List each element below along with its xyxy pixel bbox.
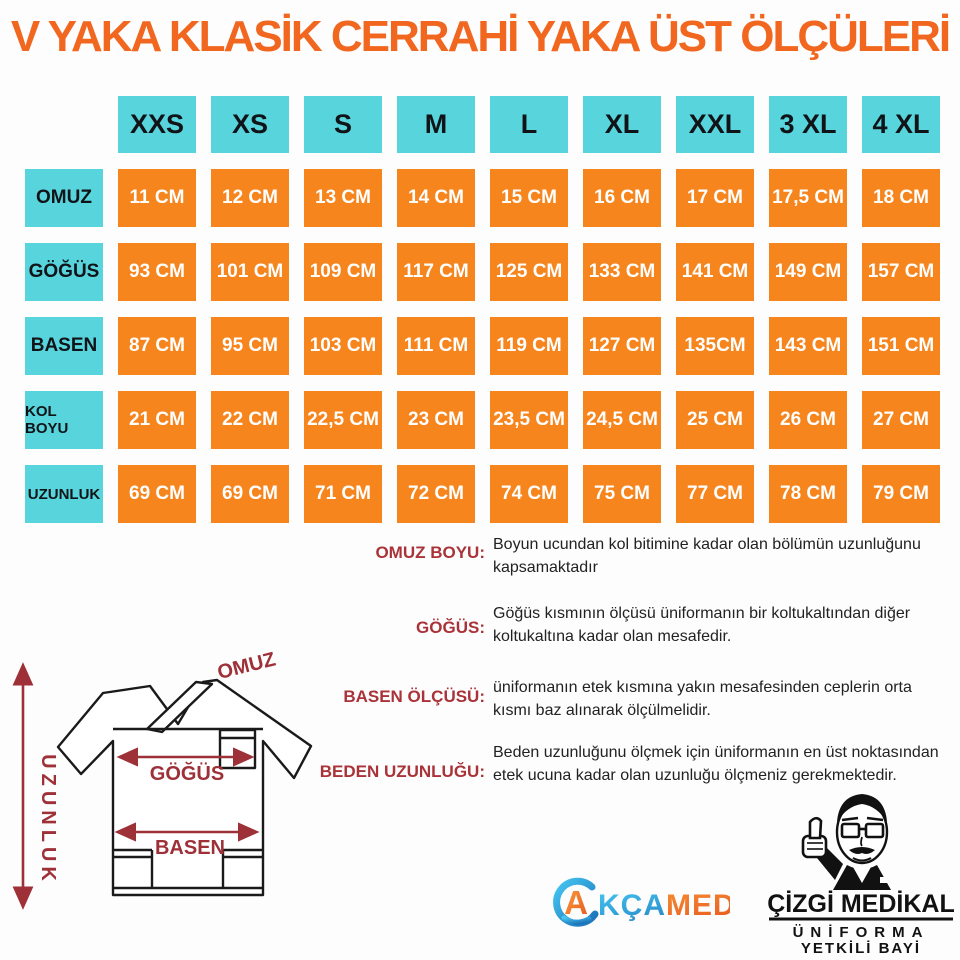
size-table: XXS XS S M L XL XXL 3 XL 4 XL OMUZ 11 CM… [25, 96, 940, 523]
cizgi-medikal-wordmark: ÇİZGİ MEDİKAL [767, 890, 955, 918]
description-label: GÖĞÜS: [0, 618, 485, 638]
basen-label: BASEN [155, 837, 225, 859]
uzunluk-label: UZUNLUK [37, 754, 59, 886]
col-header-l: L [490, 96, 568, 153]
table-corner-spacer [25, 96, 103, 153]
table-cell: 117 CM [397, 243, 475, 301]
table-cell: 157 CM [862, 243, 940, 301]
table-cell: 17 CM [676, 169, 754, 227]
table-cell: 149 CM [769, 243, 847, 301]
table-cell: 127 CM [583, 317, 661, 375]
table-cell: 111 CM [397, 317, 475, 375]
col-header-s: S [304, 96, 382, 153]
table-cell: 141 CM [676, 243, 754, 301]
table-cell: 14 CM [397, 169, 475, 227]
table-cell: 71 CM [304, 465, 382, 523]
table-cell: 75 CM [583, 465, 661, 523]
table-cell: 135CM [676, 317, 754, 375]
gogus-label: GÖĞÜS [150, 761, 224, 785]
cizgi-uniforma-text: ÜNİFORMA [793, 924, 930, 941]
size-chart-page: V YAKA KLASİK CERRAHİ YAKA ÜST ÖLÇÜLERİ … [0, 0, 960, 960]
col-header-4xl: 4 XL [862, 96, 940, 153]
cizgi-medikal-logo: ÇİZGİ MEDİKAL ÜNİFORMA YETKİLİ BAYİ [763, 782, 959, 958]
col-header-xxl: XXL [676, 96, 754, 153]
table-cell: 74 CM [490, 465, 568, 523]
table-cell: 109 CM [304, 243, 382, 301]
col-header-xl: XL [583, 96, 661, 153]
table-cell: 23,5 CM [490, 391, 568, 449]
table-cell: 103 CM [304, 317, 382, 375]
table-cell: 18 CM [862, 169, 940, 227]
table-cell: 13 CM [304, 169, 382, 227]
table-cell: 87 CM [118, 317, 196, 375]
table-cell: 151 CM [862, 317, 940, 375]
table-cell: 77 CM [676, 465, 754, 523]
omuz-label: OMUZ [215, 648, 277, 684]
table-cell: 72 CM [397, 465, 475, 523]
row-label-gogus: GÖĞÜS [25, 243, 103, 301]
table-cell: 95 CM [211, 317, 289, 375]
page-title: V YAKA KLASİK CERRAHİ YAKA ÜST ÖLÇÜLERİ [0, 12, 960, 62]
table-cell: 125 CM [490, 243, 568, 301]
description-label: OMUZ BOYU: [0, 543, 485, 563]
row-label-kol-boyu: KOL BOYU [25, 391, 103, 449]
row-label-uzunluk: UZUNLUK [25, 465, 103, 523]
col-header-3xl: 3 XL [769, 96, 847, 153]
table-cell: 26 CM [769, 391, 847, 449]
col-header-xxs: XXS [118, 96, 196, 153]
akcamed-icon-letter: A [564, 884, 588, 921]
cizgi-yetkili-bayi-text: YETKİLİ BAYİ [801, 940, 921, 957]
table-cell: 69 CM [211, 465, 289, 523]
col-header-m: M [397, 96, 475, 153]
table-cell: 22,5 CM [304, 391, 382, 449]
table-cell: 22 CM [211, 391, 289, 449]
description-text: Göğüs kısmının ölçüsü üniformanın bir ko… [493, 602, 948, 648]
akcamed-text-blue: KÇA [598, 889, 666, 922]
table-cell: 21 CM [118, 391, 196, 449]
description-text: Beden uzunluğunu ölçmek için üniformanın… [493, 741, 948, 787]
description-text: üniformanın etek kısmına yakın mesafesin… [493, 676, 948, 722]
col-header-xs: XS [211, 96, 289, 153]
row-label-basen: BASEN [25, 317, 103, 375]
table-cell: 24,5 CM [583, 391, 661, 449]
table-cell: 133 CM [583, 243, 661, 301]
table-cell: 16 CM [583, 169, 661, 227]
table-cell: 12 CM [211, 169, 289, 227]
table-cell: 15 CM [490, 169, 568, 227]
table-cell: 27 CM [862, 391, 940, 449]
thumbs-up-man-icon [803, 794, 891, 890]
description-text: Boyun ucundan kol bitimine kadar olan bö… [493, 533, 948, 579]
table-cell: 69 CM [118, 465, 196, 523]
table-cell: 23 CM [397, 391, 475, 449]
row-label-omuz: OMUZ [25, 169, 103, 227]
table-cell: 79 CM [862, 465, 940, 523]
table-cell: 119 CM [490, 317, 568, 375]
akcamed-wordmark: KÇAMED [598, 889, 730, 922]
table-cell: 93 CM [118, 243, 196, 301]
scrub-top-diagram: UZUNLUK GÖĞÜS BASEN OMUZ [0, 640, 360, 960]
table-cell: 143 CM [769, 317, 847, 375]
table-cell: 25 CM [676, 391, 754, 449]
akcamed-text-orange: MED [666, 889, 730, 922]
akcamed-logo: A KÇAMED [548, 874, 730, 932]
scrub-top-outline [58, 680, 311, 895]
table-cell: 11 CM [118, 169, 196, 227]
table-cell: 101 CM [211, 243, 289, 301]
table-cell: 17,5 CM [769, 169, 847, 227]
table-cell: 78 CM [769, 465, 847, 523]
